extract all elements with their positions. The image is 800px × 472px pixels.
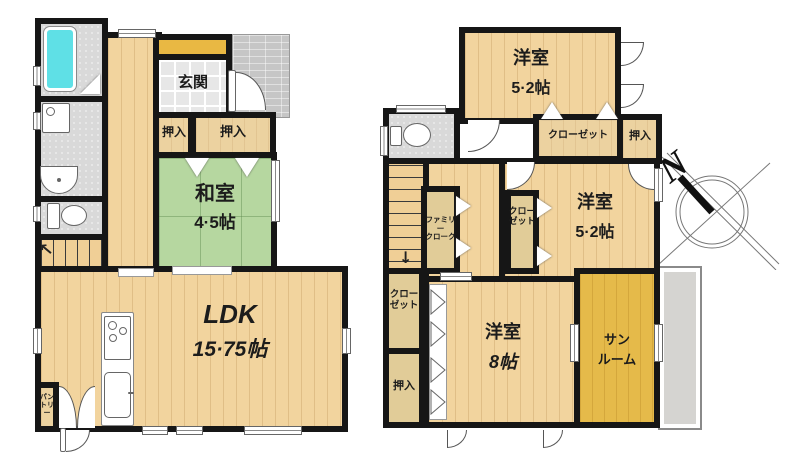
hall-2f-window [380,126,388,156]
ldk-name: LDK [155,300,305,330]
back-door-swing-icon [66,430,90,452]
ldk-right-window [342,328,351,354]
sunroom-right-window [654,324,663,362]
kitchen-sink [104,372,131,418]
closet-top-label: クローゼット [539,130,617,142]
stove-burner [119,327,127,335]
folding-door-strip-icon [429,284,447,420]
closet-top-door-icon [541,102,563,119]
entrance-label: 玄関 [158,74,228,91]
hall-window [118,29,156,38]
wash-basin-drain [57,178,61,182]
toilet-2f-bowl [403,123,431,147]
ldk-size: 15·75帖 [148,338,312,362]
tatami-closet-door-icon [235,158,259,177]
family-closet-door-icon [456,196,471,216]
ldk-bottom-window [142,426,168,435]
bedroom-mid-window [654,168,663,202]
oshiire-2f-left-label: 押入 [387,380,421,393]
ldk-bottom-window [176,426,203,435]
bedroom-large-size: 8帖 [453,352,553,373]
family-closet-door-icon [456,238,471,258]
floor-plan: ↑ ↓ [0,0,800,472]
toilet-1f-tank [47,203,60,229]
sunroom-label: サン ルーム [584,330,650,369]
bedroom-mid-name: 洋室 [540,192,650,213]
tatami-ldk-sliding-door [172,266,232,275]
stairs-2f-arrow-icon: ↓ [399,248,412,267]
family-closet-label: ファミリー クローク [423,216,458,242]
balcony [658,266,702,430]
kitchen-faucet [128,392,134,394]
bath-window [33,66,41,86]
closet-mid [505,190,539,274]
bedroom-top-size: 5·2帖 [468,80,594,98]
compass: N [650,140,780,270]
closet-left-2f-label: クロー ゼット [387,290,421,312]
toilet-2f-tank [390,126,402,146]
bedroom-mid-size: 5·2帖 [536,224,654,242]
ldk-bottom-window [244,426,302,435]
bedroom-top-door-swing-icon [468,120,500,152]
washing-machine-dial [46,107,55,116]
window-swing-icon [543,430,563,448]
sunroom-left-window [570,324,579,362]
bedroom-top-name: 洋室 [471,48,591,69]
ldk-left-window [33,328,42,354]
oshiire-2f-top-label: 押入 [622,130,658,143]
bathtub [44,27,76,91]
closet-top-door-icon [596,102,618,119]
closet-mid-door-icon [537,246,552,266]
oshiire-1f-wide-label: 押入 [196,125,270,140]
oshiire-1f-small-label: 押入 [155,126,193,140]
tatami-room-size: 4·5帖 [155,213,275,233]
tatami-closet-door-icon [185,158,209,177]
window-swing-icon [447,430,467,448]
toilet-2f-window [396,105,446,113]
washroom-window [33,112,41,130]
hall-opening [118,268,154,277]
entrance-door-leaf [228,70,236,112]
bath-door-icon [80,74,100,94]
closet-mid-label: クロー ゼット [506,206,538,227]
stove-burner [108,321,117,330]
pantry-label: パン トリー [37,394,57,418]
bedroom-large-sliding-door [440,272,472,281]
tatami-room-name: 和室 [155,183,275,206]
bedroom-large-name: 洋室 [453,322,553,343]
toilet-1f-window [33,206,41,222]
toilet-1f-bowl [61,205,87,226]
bedroom-top-window-swing-icon [621,84,644,108]
bedroom-top-window-swing-icon [621,42,644,66]
stove-burner [109,334,117,342]
